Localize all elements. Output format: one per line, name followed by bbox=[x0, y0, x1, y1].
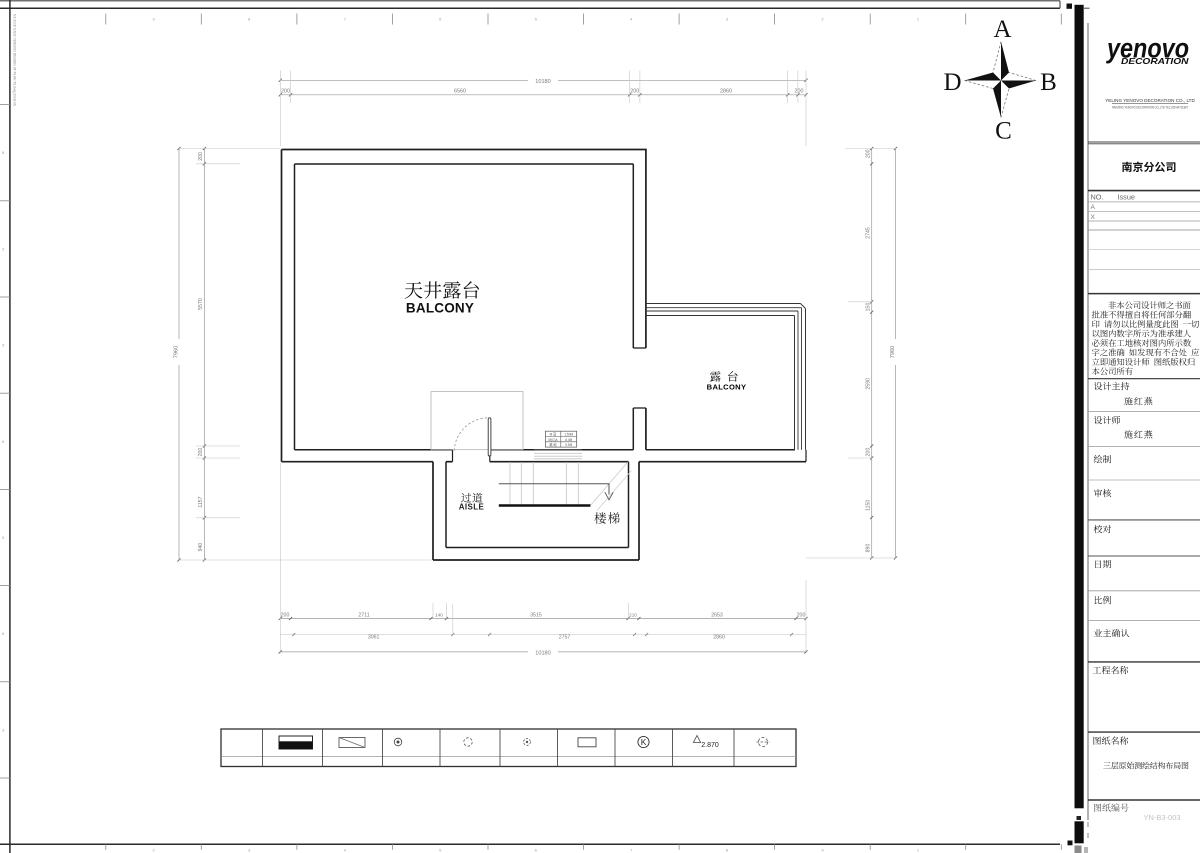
svg-text:X: X bbox=[1091, 214, 1096, 221]
svg-text:7960: 7960 bbox=[174, 346, 180, 358]
svg-text:940: 940 bbox=[198, 543, 204, 552]
svg-text:YELING YENOVO DECORATION CO.,: YELING YENOVO DECORATION CO., LTD bbox=[1105, 98, 1195, 103]
svg-text:2860: 2860 bbox=[713, 635, 725, 641]
svg-text:200: 200 bbox=[630, 89, 639, 95]
svg-text:YN-B3-003: YN-B3-003 bbox=[1143, 813, 1180, 822]
svg-text:Issue: Issue bbox=[1118, 192, 1135, 201]
svg-text:2860: 2860 bbox=[720, 89, 732, 95]
svg-text:2757: 2757 bbox=[559, 635, 571, 641]
svg-text:200: 200 bbox=[281, 612, 290, 618]
svg-text:2590: 2590 bbox=[866, 378, 872, 390]
svg-text:200: 200 bbox=[866, 448, 872, 457]
svg-text:140: 140 bbox=[435, 612, 443, 617]
svg-text:B: B bbox=[1040, 69, 1057, 96]
svg-text:D: D bbox=[943, 69, 961, 96]
svg-text:200: 200 bbox=[866, 149, 872, 158]
svg-text:6560: 6560 bbox=[454, 89, 466, 95]
svg-text:10180: 10180 bbox=[535, 651, 551, 657]
svg-text:2653: 2653 bbox=[711, 612, 723, 618]
svg-text:890: 890 bbox=[866, 544, 872, 553]
svg-text:3061: 3061 bbox=[368, 635, 380, 641]
svg-text:2711: 2711 bbox=[358, 612, 369, 618]
svg-text:NO.: NO. bbox=[1091, 192, 1104, 201]
svg-text:NJ-2008 SJ\03 YENOVO DESIGN 3F: NJ-2008 SJ\03 YENOVO DESIGN 3F PLAN T3.d… bbox=[13, 14, 17, 106]
svg-text:BALCONY: BALCONY bbox=[406, 301, 474, 316]
svg-text:7960: 7960 bbox=[890, 346, 896, 358]
svg-text:NANJING YENOVO DECORATION CO.,: NANJING YENOVO DECORATION CO.,LTD TEL:02… bbox=[1112, 105, 1188, 110]
svg-text:BALCONY: BALCONY bbox=[707, 382, 747, 391]
svg-text:A 4M: A 4M bbox=[565, 438, 573, 442]
svg-text:200: 200 bbox=[281, 89, 290, 95]
svg-text:DECORATION: DECORATION bbox=[1121, 56, 1190, 66]
svg-text:200: 200 bbox=[795, 89, 804, 95]
svg-text:AISLE: AISLE bbox=[459, 502, 485, 511]
svg-text:5570: 5570 bbox=[198, 298, 204, 310]
svg-text:200: 200 bbox=[797, 612, 806, 618]
svg-text:1150: 1150 bbox=[866, 500, 872, 511]
svg-text:离 地: 离 地 bbox=[549, 442, 557, 447]
svg-text:3515: 3515 bbox=[530, 612, 542, 618]
svg-text:1.50M: 1.50M bbox=[564, 433, 573, 437]
svg-text:2.870: 2.870 bbox=[701, 742, 719, 749]
svg-text:210: 210 bbox=[629, 612, 637, 617]
svg-text:150: 150 bbox=[866, 303, 872, 312]
svg-text:0.9M: 0.9M bbox=[565, 443, 572, 447]
svg-text:M(C)A: M(C)A bbox=[548, 438, 558, 442]
svg-text:M 高: M 高 bbox=[550, 432, 557, 437]
svg-text:200: 200 bbox=[198, 152, 204, 161]
svg-text:A: A bbox=[993, 16, 1011, 43]
svg-text:2745: 2745 bbox=[866, 227, 872, 239]
svg-text:C: C bbox=[995, 118, 1012, 145]
svg-text:200: 200 bbox=[198, 448, 204, 457]
svg-text:10180: 10180 bbox=[535, 79, 551, 85]
svg-text:A: A bbox=[1091, 204, 1096, 211]
svg-text:1157: 1157 bbox=[198, 496, 204, 507]
svg-text:K: K bbox=[641, 737, 647, 747]
